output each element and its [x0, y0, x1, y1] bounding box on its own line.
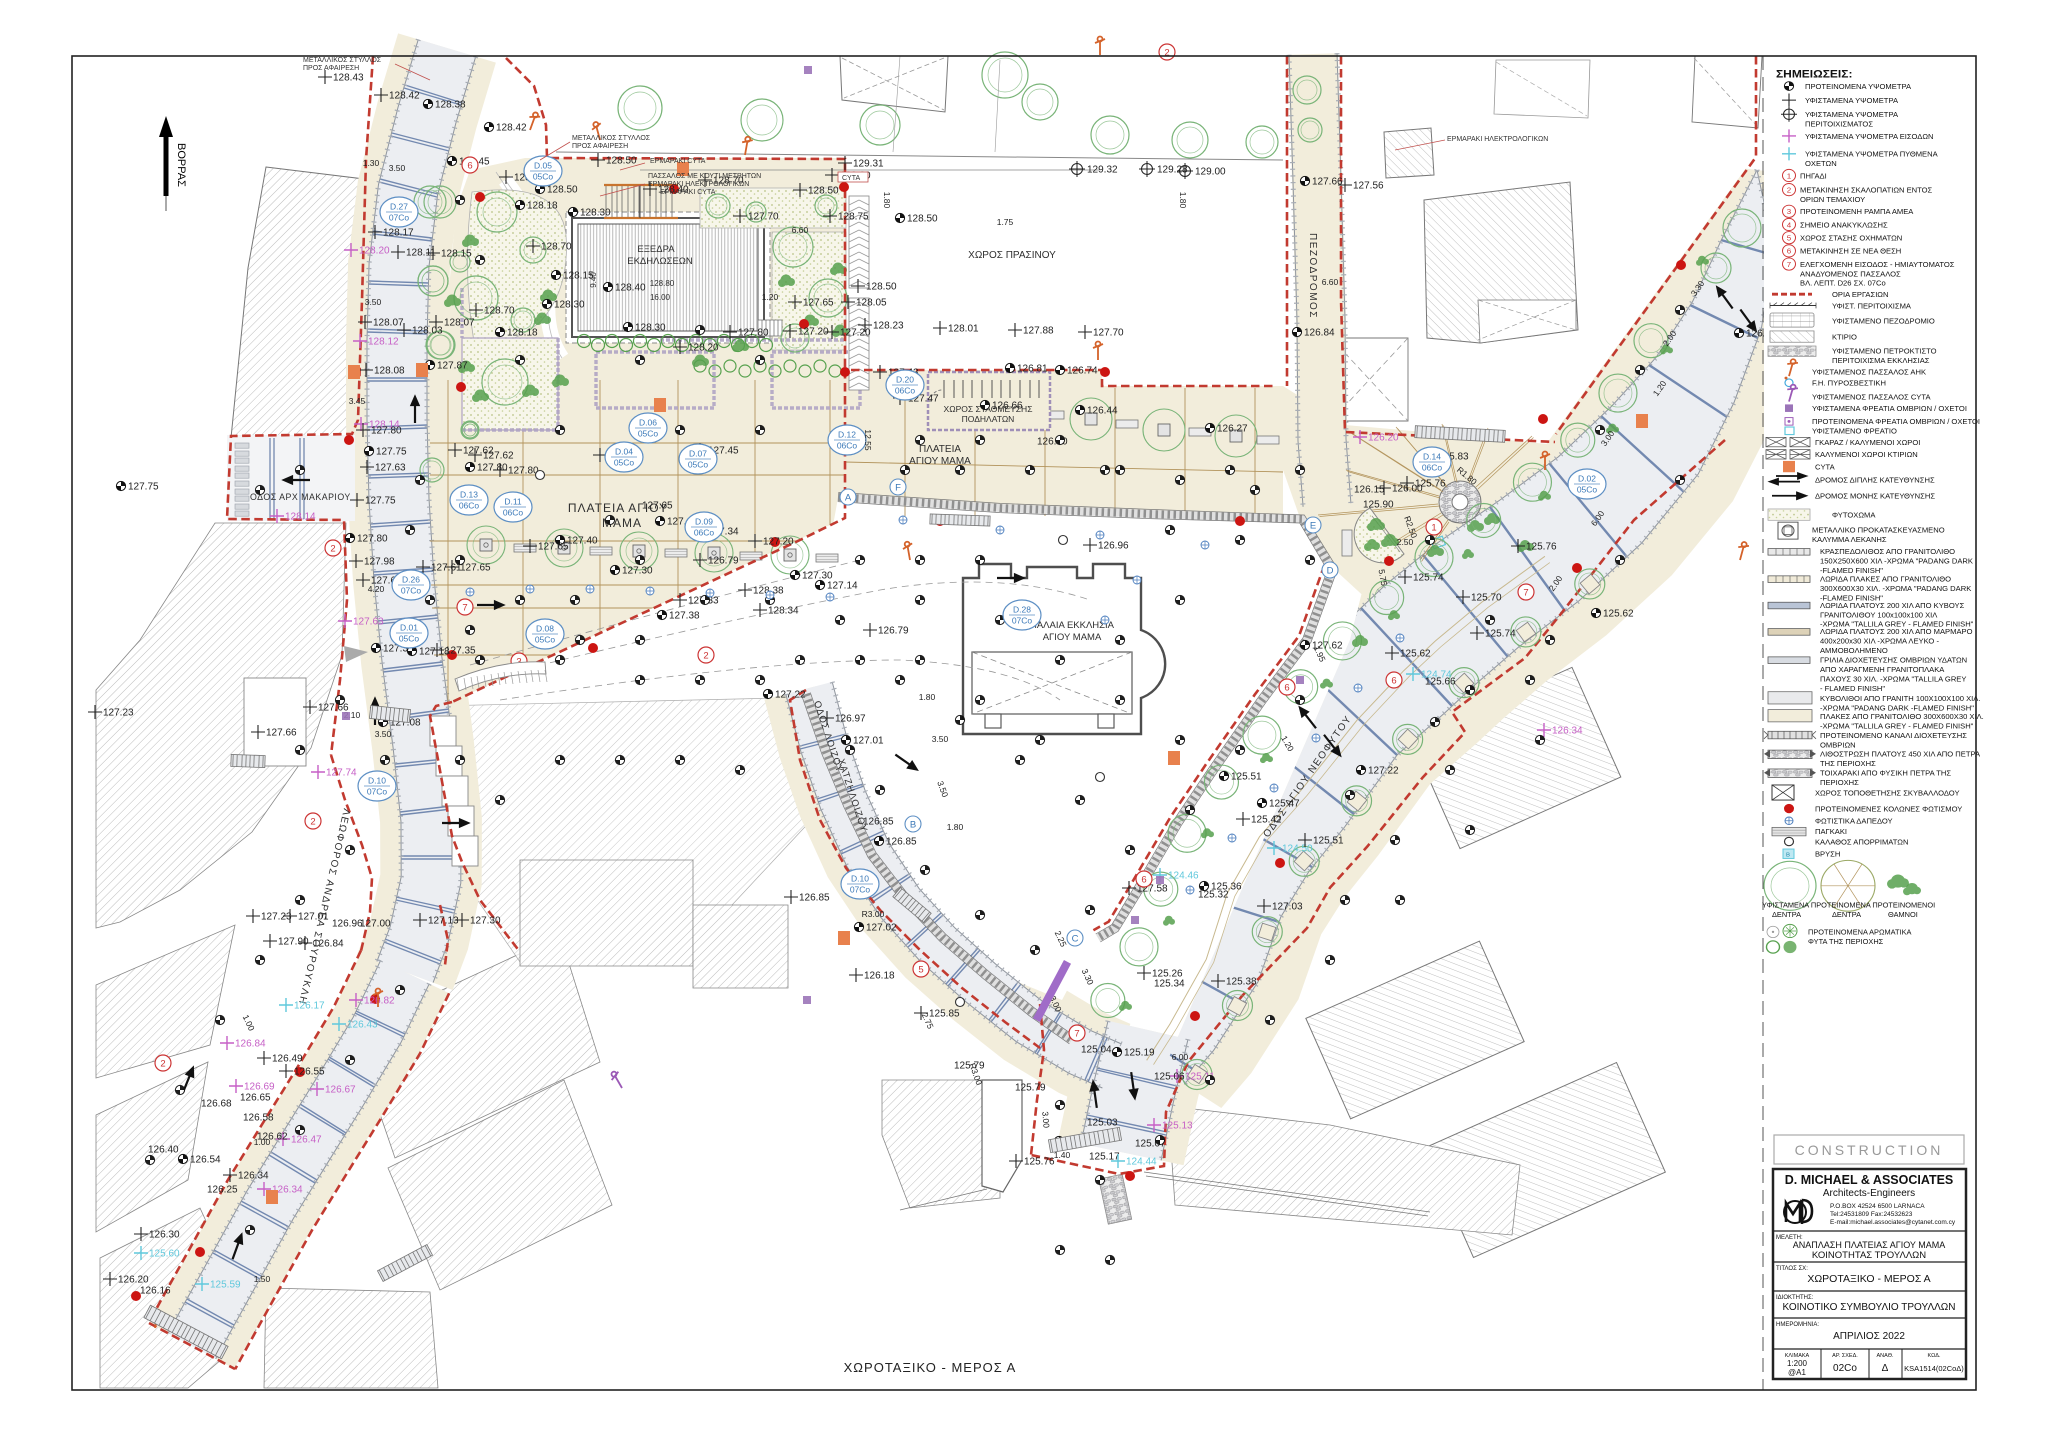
- svg-text:128.43: 128.43: [333, 73, 364, 84]
- svg-text:ΧΩΡΟΣ ΣΤΑΣΗΣ ΟΧΗΜΑΤΩΝ: ΧΩΡΟΣ ΣΤΑΣΗΣ ΟΧΗΜΑΤΩΝ: [1800, 234, 1902, 243]
- svg-text:125.38: 125.38: [1226, 977, 1257, 988]
- svg-text:127.66: 127.66: [266, 728, 297, 739]
- svg-text:125.62: 125.62: [1603, 609, 1634, 620]
- svg-text:ΦΥΤΟΧΩΜΑ: ΦΥΤΟΧΩΜΑ: [1832, 511, 1875, 520]
- svg-text:CYTA: CYTA: [1815, 463, 1835, 472]
- svg-text:ΧΩΡΟΤΑΞΙΚΟ - ΜΕΡΟΣ Α: ΧΩΡΟΤΑΞΙΚΟ - ΜΕΡΟΣ Α: [844, 1360, 1017, 1375]
- svg-text:ΑΝΑΔΥΟΜΕΝΟΣ ΠΑΣΣΑΛΟΣ: ΑΝΑΔΥΟΜΕΝΟΣ ΠΑΣΣΑΛΟΣ: [1800, 270, 1901, 279]
- svg-text:128.23: 128.23: [873, 321, 904, 332]
- svg-text:C: C: [1072, 934, 1079, 945]
- svg-text:126.20: 126.20: [118, 1275, 149, 1286]
- svg-text:127.00: 127.00: [360, 919, 391, 930]
- svg-text:126.00: 126.00: [1392, 484, 1423, 495]
- svg-text:05Co: 05Co: [688, 460, 709, 470]
- svg-text:D.11: D.11: [504, 497, 522, 507]
- svg-text:2: 2: [330, 544, 335, 555]
- svg-text:1.80: 1.80: [919, 692, 936, 702]
- svg-text:F: F: [895, 483, 901, 494]
- svg-text:ΣΗΜΕΙΩΣΕΙΣ:: ΣΗΜΕΙΩΣΕΙΣ:: [1776, 68, 1852, 81]
- svg-text:127.30: 127.30: [622, 566, 653, 577]
- svg-text:ΟΜΒΡΙΩΝ: ΟΜΒΡΙΩΝ: [1820, 741, 1856, 750]
- svg-text:126.18: 126.18: [864, 971, 895, 982]
- svg-text:ΥΦΙΣΤΑΜΕΝΟΣ ΠΑΣΣΑΛΟΣ ΑΗΚ: ΥΦΙΣΤΑΜΕΝΟΣ ΠΑΣΣΑΛΟΣ ΑΗΚ: [1812, 367, 1926, 376]
- svg-text:128.40: 128.40: [615, 283, 646, 294]
- svg-text:126.16: 126.16: [140, 1286, 171, 1297]
- svg-text:ΒΟΡΡΑΣ: ΒΟΡΡΑΣ: [175, 143, 187, 187]
- svg-text:126.96: 126.96: [332, 919, 363, 930]
- svg-text:B: B: [1786, 853, 1790, 859]
- svg-text:16.00: 16.00: [650, 293, 671, 302]
- svg-text:D: D: [1327, 566, 1334, 577]
- svg-text:126.34: 126.34: [1552, 726, 1583, 737]
- svg-text:1.00: 1.00: [254, 1137, 271, 1147]
- svg-text:3.50: 3.50: [375, 729, 392, 739]
- svg-text:6: 6: [1284, 683, 1289, 694]
- svg-text:6.60: 6.60: [1322, 277, 1339, 287]
- svg-text:128.18: 128.18: [527, 201, 558, 212]
- svg-text:127.74: 127.74: [326, 768, 357, 779]
- svg-text:2: 2: [160, 1059, 165, 1070]
- svg-text:6: 6: [467, 161, 472, 172]
- svg-text:D.20: D.20: [896, 375, 914, 385]
- svg-text:128.17: 128.17: [383, 228, 414, 239]
- svg-text:127.87: 127.87: [437, 361, 468, 372]
- svg-text:127.23: 127.23: [261, 912, 292, 923]
- svg-text:1.30: 1.30: [363, 158, 380, 168]
- svg-text:126.47: 126.47: [291, 1135, 322, 1146]
- svg-text:3: 3: [1787, 207, 1791, 216]
- svg-text:ΓΡΙΛΙΑ ΔΙΟΧΕΤΕΥΣΗΣ ΟΜΒΡΙΩΝ ΥΔΑ: ΓΡΙΛΙΑ ΔΙΟΧΕΤΕΥΣΗΣ ΟΜΒΡΙΩΝ ΥΔΑΤΩΝ: [1820, 656, 1967, 665]
- svg-text:128.70: 128.70: [541, 242, 572, 253]
- svg-text:CYTA: CYTA: [842, 175, 860, 182]
- svg-text:ΜΕΤΑΛΛΙΚΟΣ ΣΤΥΛΛΟΣ: ΜΕΤΑΛΛΙΚΟΣ ΣΤΥΛΛΟΣ: [572, 135, 651, 142]
- svg-text:127.80: 127.80: [357, 534, 388, 545]
- svg-text:ΥΦΙΣΤΑΜΕΝΟΣ ΠΑΣΣΑΛΟΣ CYTA: ΥΦΙΣΤΑΜΕΝΟΣ ΠΑΣΣΑΛΟΣ CYTA: [1812, 393, 1931, 402]
- svg-text:05Co: 05Co: [638, 429, 659, 439]
- svg-text:125.13: 125.13: [1162, 1121, 1193, 1132]
- svg-text:128.30: 128.30: [580, 208, 611, 219]
- svg-text:126.15: 126.15: [1354, 485, 1385, 496]
- svg-text:126.85: 126.85: [863, 817, 894, 828]
- svg-text:7: 7: [1523, 588, 1528, 599]
- svg-text:128.50: 128.50: [606, 156, 637, 167]
- svg-text:ΟΔΟΣ ΑΡΧ ΜΑΚΑΡΙΟΥ: ΟΔΟΣ ΑΡΧ ΜΑΚΑΡΙΟΥ: [250, 492, 351, 502]
- svg-text:126.81: 126.81: [1017, 364, 1048, 375]
- svg-text:D.10: D.10: [851, 874, 869, 884]
- svg-text:ΚΑΛΑΘΟΣ ΑΠΟΡΡΙΜΑΤΩΝ: ΚΑΛΑΘΟΣ ΑΠΟΡΡΙΜΑΤΩΝ: [1815, 838, 1908, 847]
- svg-text:126.54: 126.54: [190, 1155, 221, 1166]
- svg-text:127.23: 127.23: [103, 708, 134, 719]
- svg-text:127.62: 127.62: [483, 451, 514, 462]
- svg-text:ΘΑΜΝΟΙ: ΘΑΜΝΟΙ: [1888, 911, 1918, 919]
- svg-text:126.30: 126.30: [149, 1230, 180, 1241]
- svg-text:ΧΩΡΟΣ ΤΟΠΟΘΕΤΗΣΗΣ ΣΚΥΒΑΛΛΟΔΟΥ: ΧΩΡΟΣ ΤΟΠΟΘΕΤΗΣΗΣ ΣΚΥΒΑΛΛΟΔΟΥ: [1815, 789, 1960, 798]
- svg-text:ΤΗΣ ΠΕΡΙΟΧΗΣ: ΤΗΣ ΠΕΡΙΟΧΗΣ: [1820, 759, 1876, 768]
- svg-text:ΙΔΙΟΚΤΗΤΗΣ:: ΙΔΙΟΚΤΗΤΗΣ:: [1776, 1295, 1814, 1301]
- svg-text:KSA1514(02CoΔ): KSA1514(02CoΔ): [1904, 1364, 1964, 1373]
- svg-text:126.44: 126.44: [1087, 406, 1118, 417]
- svg-text:06Co: 06Co: [837, 441, 858, 451]
- svg-text:-FLAMED FINISH": -FLAMED FINISH": [1820, 566, 1883, 575]
- svg-text:127.66: 127.66: [1312, 177, 1343, 188]
- svg-text:128.18: 128.18: [507, 328, 538, 339]
- svg-text:D.02: D.02: [1578, 474, 1596, 484]
- svg-text:126.74: 126.74: [1067, 366, 1098, 377]
- svg-text:126.25: 126.25: [207, 1185, 238, 1196]
- svg-text:D.06: D.06: [639, 418, 657, 428]
- svg-text:127.65: 127.65: [538, 542, 569, 553]
- svg-text:127.80: 127.80: [738, 328, 769, 339]
- svg-text:-ΧΡΩΜΑ "PADANG DARK -FLAMED FI: -ΧΡΩΜΑ "PADANG DARK -FLAMED FINISH": [1820, 704, 1974, 713]
- svg-text:05Co: 05Co: [614, 458, 635, 468]
- svg-text:127.14: 127.14: [827, 581, 858, 592]
- svg-text:128.30: 128.30: [635, 323, 666, 334]
- svg-text:F.H. ΠΥΡΟΣΒΕΣΤΙΚΗ: F.H. ΠΥΡΟΣΒΕΣΤΙΚΗ: [1812, 379, 1886, 388]
- svg-text:ΛΩΡΙΔΑ ΠΛΑΚΕΣ ΑΠΟ ΓΡΑΝΙΤΟΛΙΘΟ: ΛΩΡΙΔΑ ΠΛΑΚΕΣ ΑΠΟ ΓΡΑΝΙΤΟΛΙΘΟ: [1820, 575, 1951, 584]
- svg-text:127.80: 127.80: [477, 463, 508, 474]
- svg-text:128.12: 128.12: [368, 337, 399, 348]
- svg-text:ΔΕΝΤΡΑ: ΔΕΝΤΡΑ: [1832, 911, 1861, 919]
- svg-text:07Co: 07Co: [367, 787, 388, 797]
- svg-text:128.75: 128.75: [838, 212, 869, 223]
- svg-text:ΠΕΡΙΤΟΙΧΙΣΜΑΤΟΣ: ΠΕΡΙΤΟΙΧΙΣΜΑΤΟΣ: [1805, 120, 1873, 129]
- svg-text:ΑΠΟ ΧΑΡΑΓΜΕΝΗ ΓΡΑΝΙΤΟΠΛΑΚΑ: ΑΠΟ ΧΑΡΑΓΜΕΝΗ ΓΡΑΝΙΤΟΠΛΑΚΑ: [1820, 665, 1944, 674]
- svg-text:150Χ250Χ600 ΧΙΛ -ΧΡΩΜΑ "PADANG: 150Χ250Χ600 ΧΙΛ -ΧΡΩΜΑ "PADANG DARK: [1820, 557, 1973, 566]
- svg-text:02Co: 02Co: [1833, 1363, 1857, 1374]
- svg-text:125.76: 125.76: [1526, 542, 1557, 553]
- svg-text:D.13: D.13: [460, 490, 478, 500]
- svg-text:128.50: 128.50: [907, 214, 938, 225]
- svg-text:127.20: 127.20: [840, 328, 871, 339]
- svg-text:ΥΦΙΣΤΑΜΕΝΑ ΠΡΟΤΕΙΝΟΜΕΝΑ ΠΡΟΤ: ΥΦΙΣΤΑΜΕΝΑ ΠΡΟΤΕΙΝΟΜΕΝΑ ΠΡΟΤΕΙΝΟΜΕΝΟΙ: [1762, 902, 1935, 910]
- svg-text:ΠΗΓΑΔΙ: ΠΗΓΑΔΙ: [1800, 172, 1827, 181]
- svg-text:128.07: 128.07: [444, 318, 475, 329]
- svg-text:E-mail:michael.associates@cyta: E-mail:michael.associates@cytanet.com.cy: [1830, 1219, 1956, 1226]
- svg-text:1.75: 1.75: [997, 217, 1014, 227]
- svg-text:4: 4: [1787, 221, 1792, 230]
- svg-text:127.70: 127.70: [748, 212, 779, 223]
- svg-text:127.70: 127.70: [1093, 328, 1124, 339]
- svg-text:128.01: 128.01: [948, 324, 979, 335]
- svg-text:ΟΧΕΤΩΝ: ΟΧΕΤΩΝ: [1805, 159, 1837, 168]
- svg-text:125.42: 125.42: [1251, 815, 1282, 826]
- svg-text:B: B: [910, 820, 916, 831]
- svg-text:2: 2: [310, 817, 315, 828]
- svg-text:ΦΩΤΙΣΤΙΚΑ ΔΑΠΕΔΟΥ: ΦΩΤΙΣΤΙΚΑ ΔΑΠΕΔΟΥ: [1815, 817, 1893, 826]
- svg-text:D. MICHAEL & ASSOCIATES: D. MICHAEL & ASSOCIATES: [1785, 1173, 1954, 1187]
- svg-text:06Co: 06Co: [1422, 463, 1443, 473]
- svg-text:129.32: 129.32: [1087, 165, 1118, 176]
- svg-text:6.00: 6.00: [1172, 1052, 1189, 1062]
- svg-text:126.55: 126.55: [294, 1067, 325, 1078]
- svg-text:125.74: 125.74: [1485, 629, 1516, 640]
- svg-text:127.13: 127.13: [428, 916, 459, 927]
- svg-text:12.55: 12.55: [863, 429, 873, 451]
- svg-text:3.00: 3.00: [1040, 1111, 1051, 1129]
- svg-text:125.74: 125.74: [1413, 573, 1444, 584]
- svg-text:1: 1: [1431, 523, 1436, 534]
- svg-text:125.03: 125.03: [1087, 1118, 1118, 1129]
- svg-text:ΠΑΓΚΑΚΙ: ΠΑΓΚΑΚΙ: [1815, 827, 1847, 836]
- svg-text:124.46: 124.46: [1168, 871, 1199, 882]
- svg-text:7: 7: [1787, 260, 1791, 269]
- svg-text:Δ: Δ: [1882, 1363, 1889, 1374]
- svg-text:ΚΟΙΝΟΤΗΤΑΣ ΤΡΟΥΛΛΩΝ: ΚΟΙΝΟΤΗΤΑΣ ΤΡΟΥΛΛΩΝ: [1812, 1250, 1926, 1261]
- svg-text:127.88: 127.88: [1023, 326, 1054, 337]
- svg-text:ΠΡΟΤΕΙΝΟΜΕΝΑ ΥΨΟΜΕΤΡΑ: ΠΡΟΤΕΙΝΟΜΕΝΑ ΥΨΟΜΕΤΡΑ: [1805, 82, 1911, 91]
- svg-text:1:200: 1:200: [1787, 1359, 1808, 1368]
- svg-text:ΟΡΙΩΝ ΤΕΜΑΧΙΟΥ: ΟΡΙΩΝ ΤΕΜΑΧΙΟΥ: [1800, 195, 1865, 204]
- svg-text:05Co: 05Co: [533, 172, 554, 182]
- svg-text:127.30: 127.30: [802, 571, 833, 582]
- svg-text:06Co: 06Co: [503, 508, 524, 518]
- svg-text:ΜΕΤΑΛΛΙΚΟΣ ΣΤΥΛΛΟΣ: ΜΕΤΑΛΛΙΚΟΣ ΣΤΥΛΛΟΣ: [303, 57, 382, 64]
- svg-text:128.34: 128.34: [768, 606, 799, 617]
- svg-text:D.14: D.14: [1423, 452, 1441, 462]
- svg-text:127.75: 127.75: [365, 496, 396, 507]
- svg-text:ΟΡΙΑ ΕΡΓΑΣΙΩΝ: ΟΡΙΑ ΕΡΓΑΣΙΩΝ: [1832, 290, 1888, 299]
- svg-text:127.20: 127.20: [798, 327, 829, 338]
- svg-text:P.O.BOX 42524 6500 LARNACA: P.O.BOX 42524 6500 LARNACA: [1830, 1203, 1925, 1210]
- svg-text:125.79: 125.79: [1015, 1083, 1046, 1094]
- svg-text:3.50: 3.50: [389, 163, 406, 173]
- svg-text:ΑΝΑΘ.: ΑΝΑΘ.: [1877, 1353, 1894, 1359]
- svg-text:ΦΥΤΑ ΤΗΣ ΠΕΡΙΟΧΗΣ: ΦΥΤΑ ΤΗΣ ΠΕΡΙΟΧΗΣ: [1808, 938, 1884, 946]
- svg-text:128.70: 128.70: [484, 306, 515, 317]
- svg-text:125.19: 125.19: [1124, 1048, 1155, 1059]
- svg-text:ΠΡΟΤΕΙΝΟΜΕΝΗ ΡΑΜΠΑ ΑΜΕΑ: ΠΡΟΤΕΙΝΟΜΕΝΗ ΡΑΜΠΑ ΑΜΕΑ: [1800, 207, 1913, 216]
- svg-text:5: 5: [918, 965, 923, 976]
- svg-text:126.66: 126.66: [992, 401, 1023, 412]
- svg-text:128.20: 128.20: [359, 246, 390, 257]
- svg-text:ΗΜΕΡΟΜΗΝΙΑ:: ΗΜΕΡΟΜΗΝΙΑ:: [1776, 1322, 1819, 1328]
- svg-text:05Co: 05Co: [399, 634, 420, 644]
- svg-text:R3.00: R3.00: [862, 909, 885, 919]
- svg-text:127.80: 127.80: [371, 426, 402, 437]
- svg-text:6.60: 6.60: [792, 225, 809, 235]
- svg-text:125.59: 125.59: [210, 1280, 241, 1291]
- svg-text:124.44: 124.44: [1126, 1157, 1157, 1168]
- svg-text:ΣΗΜΕΙΟ ΑΝΑΚΥΚΛΩΣΗΣ: ΣΗΜΕΙΟ ΑΝΑΚΥΚΛΩΣΗΣ: [1800, 221, 1888, 230]
- svg-text:ΠΡΟΣ ΑΦΑΙΡΕΣΗ: ΠΡΟΣ ΑΦΑΙΡΕΣΗ: [572, 143, 628, 150]
- svg-text:ΠΛΑΚΕΣ ΑΠΟ ΓΡΑΝΙΤΟΛΙΘΟ 300Χ600: ΠΛΑΚΕΣ ΑΠΟ ΓΡΑΝΙΤΟΛΙΘΟ 300Χ600Χ30 ΧΙΛ.: [1820, 712, 1984, 721]
- svg-text:06Co: 06Co: [694, 528, 715, 538]
- svg-text:128.80: 128.80: [650, 279, 675, 288]
- svg-text:-ΧΡΩΜΑ "TALLILA GREY - FLAMED: -ΧΡΩΜΑ "TALLILA GREY - FLAMED FINISH": [1820, 722, 1974, 731]
- svg-text:126.68: 126.68: [201, 1099, 232, 1110]
- svg-text:128.38: 128.38: [435, 100, 466, 111]
- svg-text:ΤΟΙΧΑΡΑΚΙ ΑΠΟ ΦΥΣΙΚΗ ΠΕΤΡΑ ΤΗΣ: ΤΟΙΧΑΡΑΚΙ ΑΠΟ ΦΥΣΙΚΗ ΠΕΤΡΑ ΤΗΣ: [1820, 769, 1952, 778]
- svg-text:127.02: 127.02: [866, 923, 897, 934]
- svg-text:ΥΦΙΣΤ. ΠΕΡΙΤΟΙΧΙΣΜΑ: ΥΦΙΣΤ. ΠΕΡΙΤΟΙΧΙΣΜΑ: [1832, 302, 1911, 311]
- svg-text:07Co: 07Co: [1012, 616, 1033, 626]
- svg-text:126.82: 126.82: [364, 996, 395, 1007]
- svg-text:300Χ600Χ30 ΧΙΛ. -ΧΡΩΜΑ "PADANG: 300Χ600Χ30 ΧΙΛ. -ΧΡΩΜΑ "PADANG DARK: [1820, 584, 1971, 593]
- svg-text:D.04: D.04: [615, 447, 633, 457]
- svg-text:2: 2: [1787, 186, 1791, 195]
- svg-text:05Co: 05Co: [1577, 485, 1598, 495]
- svg-text:125.70: 125.70: [1471, 593, 1502, 604]
- svg-text:05Co: 05Co: [535, 635, 556, 645]
- svg-text:ΕΛΕΓΧΟΜΕΝΗ ΕΙΣΟΔΟΣ - ΗΜΙΑΥΤΟΜΑ: ΕΛΕΓΧΟΜΕΝΗ ΕΙΣΟΔΟΣ - ΗΜΙΑΥΤΟΜΑΤΟΣ: [1800, 260, 1955, 269]
- svg-text:06Co: 06Co: [895, 386, 916, 396]
- svg-text:ΚΑΛΥΜΕΝΟΙ ΧΩΡΟΙ ΚΤΙΡΙΩΝ: ΚΑΛΥΜΕΝΟΙ ΧΩΡΟΙ ΚΤΙΡΙΩΝ: [1815, 450, 1918, 459]
- svg-text:07Co: 07Co: [850, 885, 871, 895]
- svg-text:ΠΑΣΣΑΛΟΣ ΜΕ ΚΟΥΤΙ ΜΕΤΡΗΤΩΝ: ΠΑΣΣΑΛΟΣ ΜΕ ΚΟΥΤΙ ΜΕΤΡΗΤΩΝ: [648, 173, 761, 180]
- svg-text:4.20: 4.20: [368, 584, 385, 594]
- svg-text:ΠΡΟΤΕΙΝΟΜΕΝΑ ΦΡΕΑΤΙΑ ΟΜΒΡΙΩΝ /: ΠΡΟΤΕΙΝΟΜΕΝΑ ΦΡΕΑΤΙΑ ΟΜΒΡΙΩΝ / ΟΧΕΤΟΙ: [1812, 417, 1980, 426]
- svg-text:126.67: 126.67: [325, 1085, 356, 1096]
- svg-text:127.65: 127.65: [803, 298, 834, 309]
- svg-text:127.90: 127.90: [278, 937, 309, 948]
- svg-text:ΥΦΙΣΤΑΜΕΝΑ ΥΨΟΜΕΤΡΑ: ΥΦΙΣΤΑΜΕΝΑ ΥΨΟΜΕΤΡΑ: [1805, 110, 1898, 119]
- svg-text:125.32: 125.32: [1198, 890, 1229, 901]
- svg-text:126.84: 126.84: [1304, 328, 1335, 339]
- svg-text:129.31: 129.31: [853, 159, 884, 170]
- svg-text:128.03: 128.03: [412, 326, 443, 337]
- svg-text:127.03: 127.03: [1272, 902, 1303, 913]
- svg-text:127.30: 127.30: [470, 916, 501, 927]
- svg-text:ΕΡΜΑΡΑΚΙ CYTA: ΕΡΜΑΡΑΚΙ CYTA: [660, 189, 716, 196]
- svg-text:126.49: 126.49: [272, 1054, 303, 1065]
- svg-text:128.07: 128.07: [373, 318, 404, 329]
- svg-text:ΜΕΤΑΛΛΙΚΟ ΠΡΟΚΑΤΑΣΚΕΥΑΣΜΕΝΟ: ΜΕΤΑΛΛΙΚΟ ΠΡΟΚΑΤΑΣΚΕΥΑΣΜΕΝΟ: [1812, 526, 1945, 535]
- svg-text:ΧΩΡΟΣ ΠΡΑΣΙΝΟΥ: ΧΩΡΟΣ ΠΡΑΣΙΝΟΥ: [968, 250, 1056, 261]
- svg-text:125.76: 125.76: [1024, 1157, 1055, 1168]
- svg-text:ΥΦΙΣΤΑΜΕΝΟ ΦΡΕΑΤΙΟ: ΥΦΙΣΤΑΜΕΝΟ ΦΡΕΑΤΙΟ: [1812, 427, 1897, 436]
- svg-text:128.08: 128.08: [374, 366, 405, 377]
- svg-text:07Co: 07Co: [401, 586, 422, 596]
- svg-text:ΕΞΕΔΡΑ: ΕΞΕΔΡΑ: [637, 244, 675, 255]
- svg-text:ΛΩΡΙΔΑ ΠΛΑΤΟΥΣ 200 ΧΙΛ ΑΠΟ ΜΑΡ: ΛΩΡΙΔΑ ΠΛΑΤΟΥΣ 200 ΧΙΛ ΑΠΟ ΜΑΡΜΑΡΟ: [1820, 627, 1973, 636]
- svg-text:125.66: 125.66: [1425, 677, 1456, 688]
- svg-text:ΥΦΙΣΤΑΜΕΝΑ ΥΨΟΜΕΤΡΑ ΕΙΣΟΔΩΝ: ΥΦΙΣΤΑΜΕΝΑ ΥΨΟΜΕΤΡΑ ΕΙΣΟΔΩΝ: [1805, 132, 1934, 141]
- svg-text:6: 6: [1391, 676, 1396, 687]
- svg-text:125.34: 125.34: [1154, 979, 1185, 990]
- svg-text:127.80: 127.80: [508, 466, 539, 477]
- svg-text:125.62: 125.62: [1400, 649, 1431, 660]
- svg-text:127.63: 127.63: [353, 617, 384, 628]
- svg-text:ΕΚΔΗΛΩΣΕΩΝ: ΕΚΔΗΛΩΣΕΩΝ: [627, 256, 693, 267]
- svg-text:126.58: 126.58: [243, 1113, 274, 1124]
- svg-text:ΑΡ. ΣΧΕΔ.: ΑΡ. ΣΧΕΔ.: [1832, 1353, 1858, 1359]
- svg-text:125.51: 125.51: [1231, 772, 1262, 783]
- svg-text:128.50: 128.50: [547, 185, 578, 196]
- svg-text:ΜΕΤΑΚΙΝΗΣΗ ΣΚΑΛΟΠΑΤΙΩΝ ΕΝΤΟΣ: ΜΕΤΑΚΙΝΗΣΗ ΣΚΑΛΟΠΑΤΙΩΝ ΕΝΤΟΣ: [1800, 186, 1933, 195]
- svg-text:ΠΛΑΤΕΙΑ: ΠΛΑΤΕΙΑ: [919, 444, 961, 455]
- svg-text:126.65: 126.65: [240, 1093, 271, 1104]
- svg-text:126.27: 126.27: [1217, 424, 1248, 435]
- svg-text:126.43: 126.43: [347, 1020, 378, 1031]
- svg-text:Tel:24531809 Fax:24532623: Tel:24531809 Fax:24532623: [1830, 1211, 1913, 1218]
- svg-text:129.00: 129.00: [1195, 167, 1226, 178]
- svg-text:127.22: 127.22: [775, 690, 806, 701]
- svg-text:126.85: 126.85: [799, 893, 830, 904]
- svg-text:07Co: 07Co: [389, 213, 410, 223]
- svg-text:ΠΡΟΤΕΙΝΟΜΕΝΕΣ ΚΟΛΩΝΕΣ ΦΩΤΙΣΜΟΥ: ΠΡΟΤΕΙΝΟΜΕΝΕΣ ΚΟΛΩΝΕΣ ΦΩΤΙΣΜΟΥ: [1815, 805, 1962, 814]
- svg-text:ΠΕΖΟΔΡΟΜΟΣ: ΠΕΖΟΔΡΟΜΟΣ: [1307, 233, 1318, 319]
- svg-text:128.30: 128.30: [554, 300, 585, 311]
- svg-text:125.60: 125.60: [149, 1249, 180, 1260]
- svg-text:ΚΡΑΣΠΕΔΟΛΙΘΟΣ ΑΠΟ ΓΡΑΝΙΤΟΛΙΘΟ: ΚΡΑΣΠΕΔΟΛΙΘΟΣ ΑΠΟ ΓΡΑΝΙΤΟΛΙΘΟ: [1820, 547, 1955, 556]
- svg-text:ΕΡΜΑΡΑΚΙ ΗΛΕΚΤΡΟΛΟΓΙΚΩΝ: ΕΡΜΑΡΑΚΙ ΗΛΕΚΤΡΟΛΟΓΙΚΩΝ: [648, 181, 749, 188]
- svg-text:E: E: [1310, 521, 1316, 532]
- svg-text:ΒΛ. ΛΕΠΤ. D26 ΣΧ. 07Co: ΒΛ. ΛΕΠΤ. D26 ΣΧ. 07Co: [1800, 279, 1886, 288]
- svg-text:127.98: 127.98: [364, 557, 395, 568]
- svg-text:2: 2: [703, 651, 708, 662]
- svg-text:ΚΥΒΟΛΙΘΟΙ ΑΠΟ ΓΡΑΝΙΤΗ 100Χ100Χ: ΚΥΒΟΛΙΘΟΙ ΑΠΟ ΓΡΑΝΙΤΗ 100Χ100Χ100 ΧΙΛ.: [1820, 694, 1980, 703]
- svg-text:D.26: D.26: [402, 575, 420, 585]
- svg-text:127.40: 127.40: [567, 536, 598, 547]
- svg-text:126.84: 126.84: [313, 939, 344, 950]
- svg-text:ΥΦΙΣΤΑΜΕΝΑ ΥΨΟΜΕΤΡΑ ΠΥΘΜΕΝΑ: ΥΦΙΣΤΑΜΕΝΑ ΥΨΟΜΕΤΡΑ ΠΥΘΜΕΝΑ: [1805, 150, 1938, 159]
- svg-text:ΒΡΥΣΗ: ΒΡΥΣΗ: [1815, 850, 1840, 859]
- svg-text:ΔΕΝΤΡΑ: ΔΕΝΤΡΑ: [1772, 911, 1801, 919]
- svg-text:126.96: 126.96: [1098, 541, 1129, 552]
- svg-text:3.45: 3.45: [349, 396, 366, 406]
- svg-text:127.63: 127.63: [375, 463, 406, 474]
- svg-text:ΠΑΧΟΥΣ 30 ΧΙΛ. -ΧΡΩΜΑ "TALLILA: ΠΑΧΟΥΣ 30 ΧΙΛ. -ΧΡΩΜΑ "TALLILA GREY: [1820, 675, 1967, 684]
- svg-text:CONSTRUCTION: CONSTRUCTION: [1795, 1142, 1944, 1158]
- svg-text:125.06: 125.06: [1154, 1072, 1185, 1083]
- svg-text:ΠΕΡΙΟΧΗΣ: ΠΕΡΙΟΧΗΣ: [1820, 778, 1859, 787]
- svg-text:D.27: D.27: [390, 202, 408, 212]
- svg-text:128.15: 128.15: [441, 249, 472, 260]
- svg-text:@A1: @A1: [1788, 1368, 1806, 1377]
- svg-text:1.20: 1.20: [762, 292, 779, 302]
- svg-text:ΚΟΙΝΟΤΙΚΟ ΣΥΜΒΟΥΛΙΟ ΤΡΟΥΛΛΩΝ: ΚΟΙΝΟΤΙΚΟ ΣΥΜΒΟΥΛΙΟ ΤΡΟΥΛΛΩΝ: [1782, 1302, 1955, 1313]
- svg-text:128.50: 128.50: [866, 282, 897, 293]
- svg-text:ΥΦΙΣΤΑΜΕΝΟ ΠΕΤΡΟΚΤΙΣΤΟ: ΥΦΙΣΤΑΜΕΝΟ ΠΕΤΡΟΚΤΙΣΤΟ: [1832, 347, 1937, 356]
- svg-text:126.85: 126.85: [886, 837, 917, 848]
- svg-text:ΠΕΡΙΤΟΙΧΙΣΜΑ ΕΚΚΛΗΣΙΑΣ: ΠΕΡΙΤΟΙΧΙΣΜΑ ΕΚΚΛΗΣΙΑΣ: [1832, 356, 1930, 365]
- svg-text:127.75: 127.75: [376, 447, 407, 458]
- svg-text:ΚΤΙΡΙΟ: ΚΤΙΡΙΟ: [1832, 333, 1857, 342]
- svg-text:128.42: 128.42: [496, 123, 527, 134]
- svg-text:127.20: 127.20: [763, 537, 794, 548]
- svg-text:127.22: 127.22: [1368, 766, 1399, 777]
- svg-text:ΥΦΙΣΤΑΜΕΝΑ ΦΡΕΑΤΙΑ ΟΜΒΡΙΩΝ / Ο: ΥΦΙΣΤΑΜΕΝΑ ΦΡΕΑΤΙΑ ΟΜΒΡΙΩΝ / ΟΧΕΤΟΙ: [1812, 404, 1967, 413]
- svg-text:ΕΡΜΑΡΑΚΙ CYTA: ΕΡΜΑΡΑΚΙ CYTA: [650, 158, 706, 165]
- svg-text:- FLAMED FINISH": - FLAMED FINISH": [1820, 684, 1886, 693]
- svg-text:ΠΟΔΗΛΑΤΩΝ: ΠΟΔΗΛΑΤΩΝ: [962, 414, 1015, 424]
- svg-text:125.47: 125.47: [1269, 799, 1300, 810]
- svg-text:128.14: 128.14: [285, 512, 316, 523]
- svg-text:ΥΦΙΣΤΑΜΕΝΟ ΠΕΖΟΔΡΟΜΙΟ: ΥΦΙΣΤΑΜΕΝΟ ΠΕΖΟΔΡΟΜΙΟ: [1832, 317, 1935, 326]
- svg-text:ΑΠΡΙΛΙΟΣ 2022: ΑΠΡΙΛΙΟΣ 2022: [1833, 1331, 1905, 1342]
- svg-text:126.97: 126.97: [835, 714, 866, 725]
- svg-text:D.09: D.09: [695, 517, 713, 527]
- svg-text:126.34: 126.34: [238, 1171, 269, 1182]
- svg-text:D.01: D.01: [400, 623, 418, 633]
- svg-text:ΚΑΛΥΜΜΑ ΛΕΚΑΝΗΣ: ΚΑΛΥΜΜΑ ΛΕΚΑΝΗΣ: [1812, 535, 1887, 544]
- svg-text:1.80: 1.80: [882, 192, 892, 209]
- svg-text:D.10: D.10: [368, 776, 386, 786]
- svg-text:ΠΡΟΣ ΑΦΑΙΡΕΣΗ: ΠΡΟΣ ΑΦΑΙΡΕΣΗ: [303, 65, 359, 72]
- svg-text:126.69: 126.69: [244, 1082, 275, 1093]
- svg-text:6: 6: [1787, 247, 1791, 256]
- svg-text:128.20: 128.20: [688, 343, 719, 354]
- svg-text:126.20: 126.20: [1368, 433, 1399, 444]
- svg-text:127.65: 127.65: [642, 501, 673, 512]
- svg-text:ΛΩΡΙΔΑ ΠΛΑΤΟΥΣ 200 ΧΙΛ ΑΠΟ ΚΥΒ: ΛΩΡΙΔΑ ΠΛΑΤΟΥΣ 200 ΧΙΛ ΑΠΟ ΚΥΒΟΥΣ: [1820, 601, 1965, 610]
- svg-text:127.35: 127.35: [445, 646, 476, 657]
- svg-text:3.50: 3.50: [932, 734, 949, 744]
- svg-text:127.56: 127.56: [1353, 181, 1384, 192]
- svg-text:124.50: 124.50: [1282, 844, 1313, 855]
- svg-text:126.84: 126.84: [235, 1039, 266, 1050]
- svg-text:ΠΡΟΤΕΙΝΟΜΕΝΟ ΚΑΝΑΛΙ ΔΙΟΧΕΤΕΥΣΗ: ΠΡΟΤΕΙΝΟΜΕΝΟ ΚΑΝΑΛΙ ΔΙΟΧΕΤΕΥΣΗΣ: [1820, 731, 1967, 740]
